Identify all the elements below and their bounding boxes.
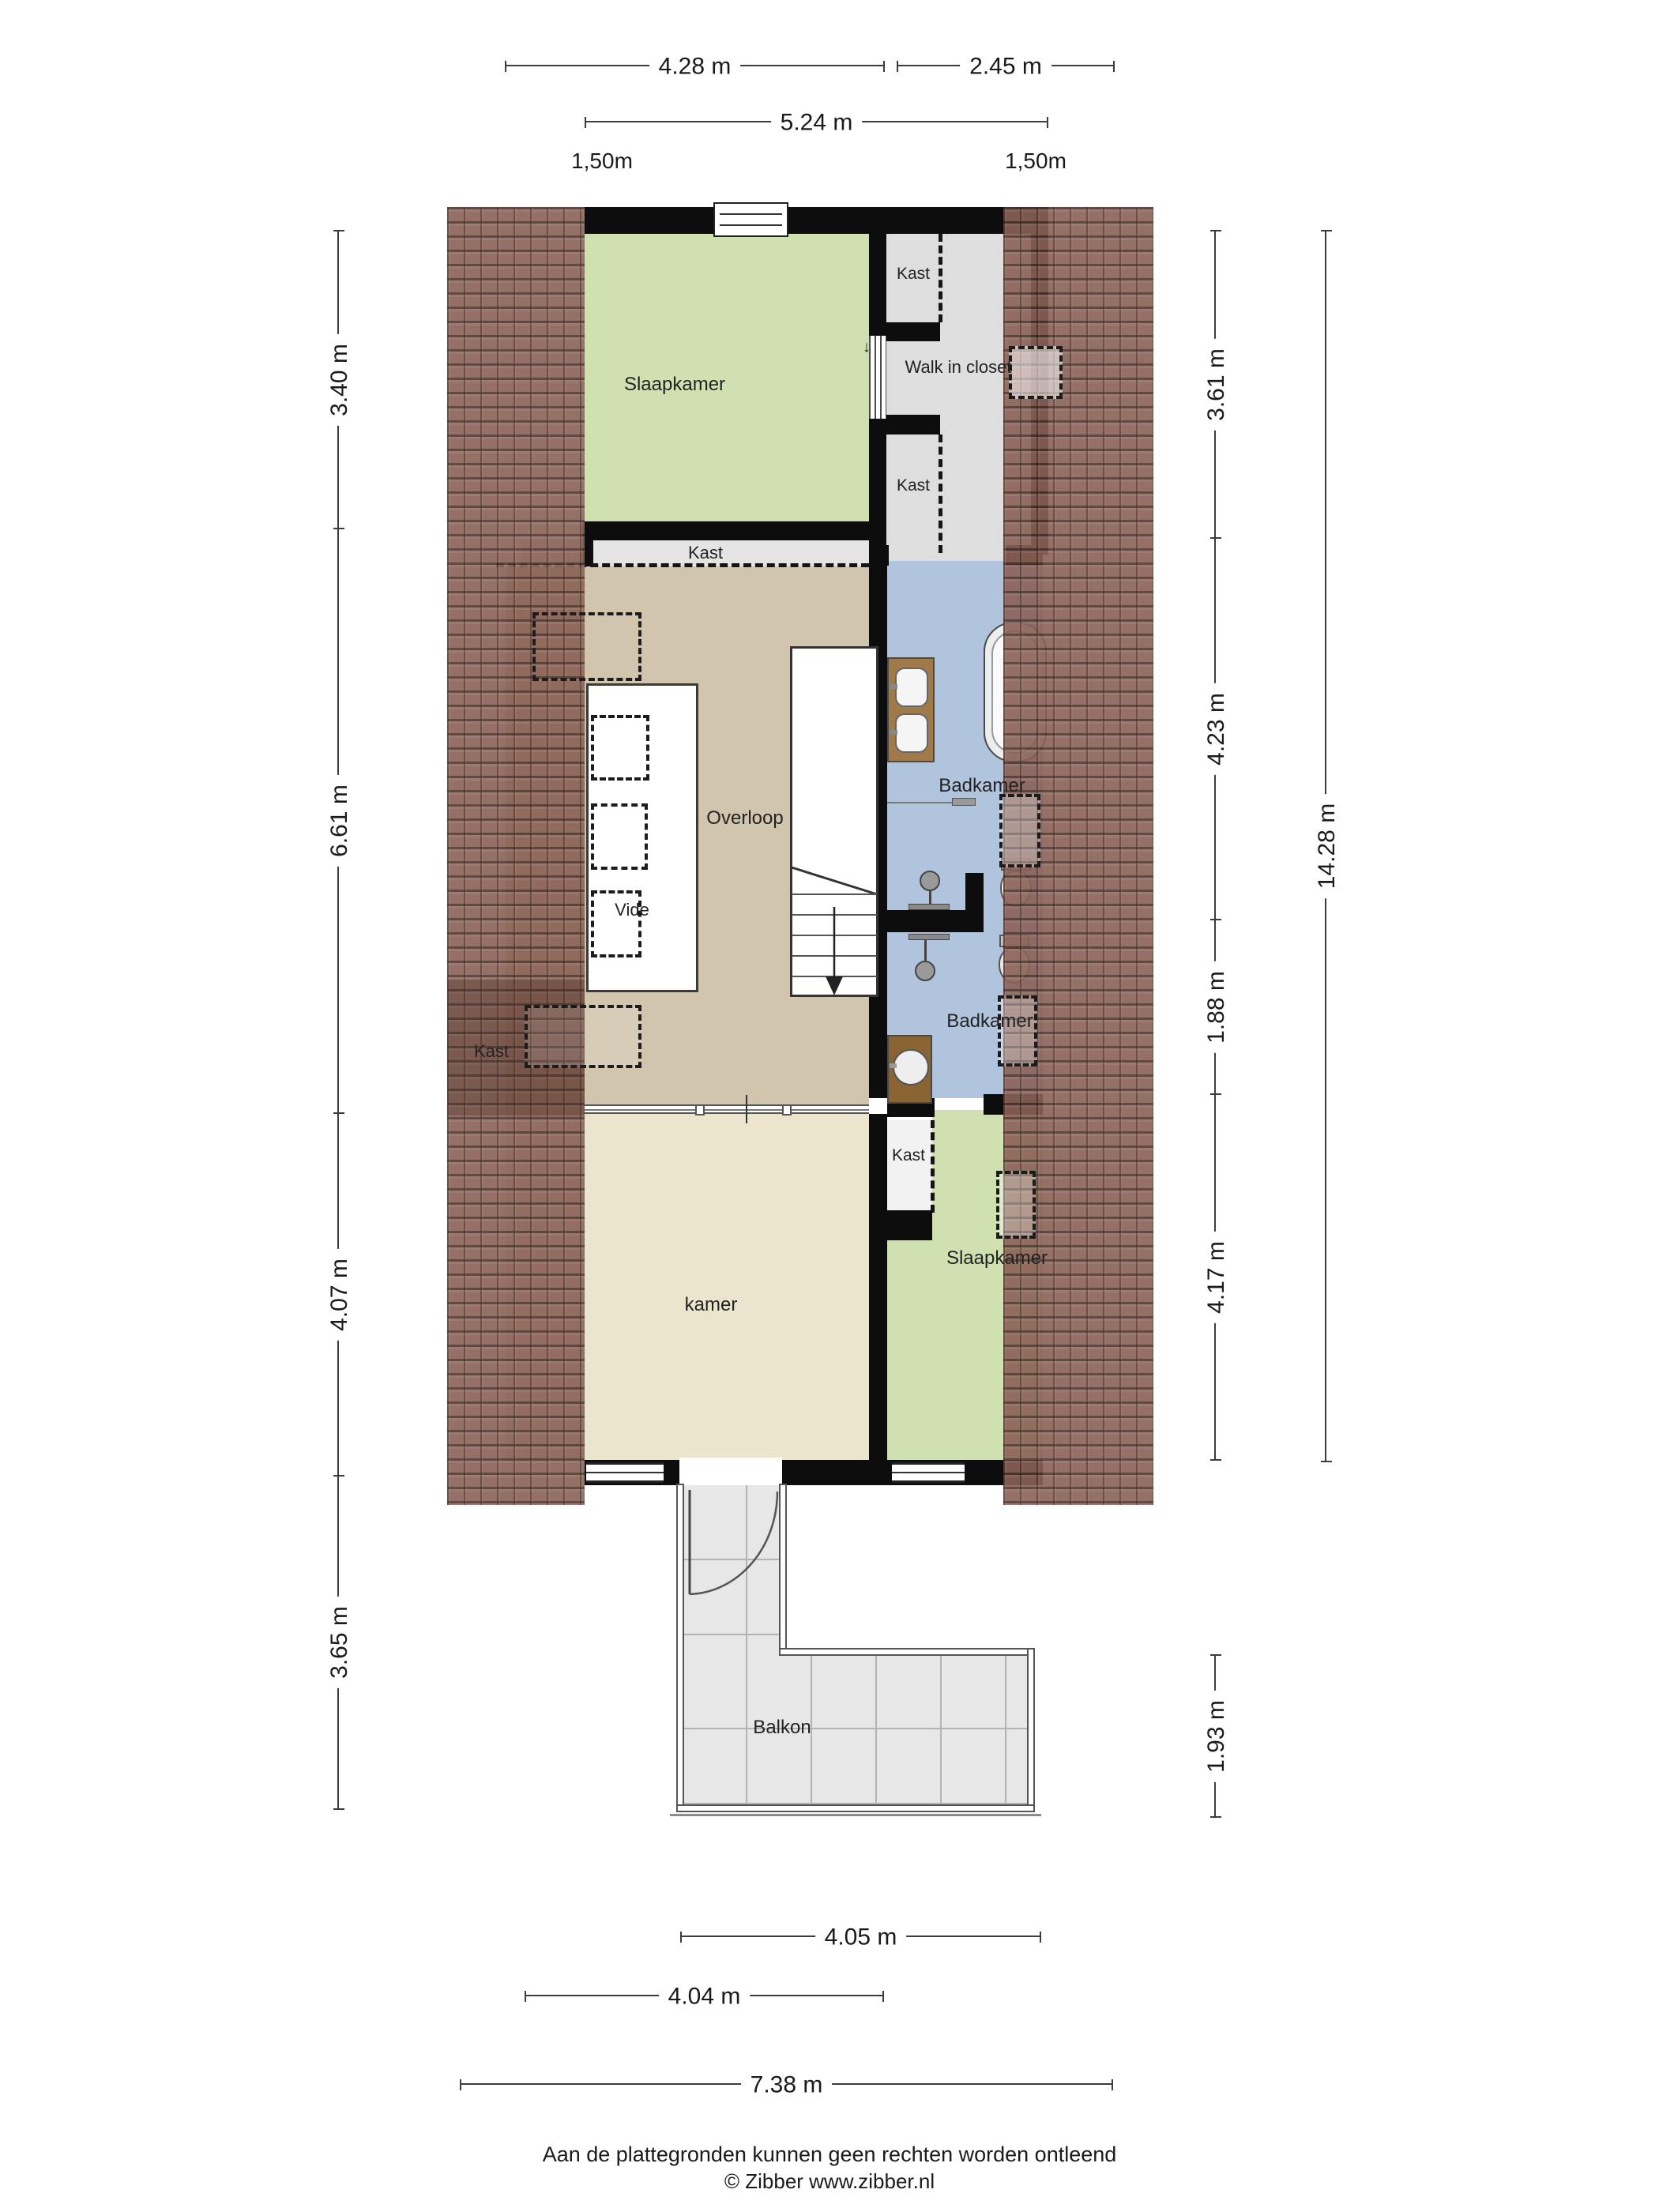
dim-right-1-label: 3.61 m — [1203, 339, 1230, 431]
room-slaapkamer-bottom-ext — [887, 1240, 935, 1465]
balcony-wall-wide-top — [779, 1648, 1035, 1656]
shower-valve-1 — [908, 904, 950, 910]
shower-head-1 — [920, 871, 940, 891]
label-badkamer-2: Badkamer — [946, 1010, 1033, 1033]
label-kast-left-roof: Kast — [474, 1041, 509, 1062]
dim-right-2: 4.23 m — [1214, 538, 1216, 920]
dim-right-4: 4.17 m — [1214, 1094, 1216, 1460]
roof-strip-left — [447, 207, 585, 1505]
dim-top-2-label: 2.45 m — [960, 53, 1051, 80]
kast3-dashed-edge — [931, 1120, 935, 1213]
dim-left-2-label: 6.61 m — [326, 775, 353, 867]
balcony-outer-edge — [670, 1814, 1041, 1816]
label-balkon: Balkon — [753, 1717, 811, 1739]
wall-kast3-bottom — [887, 1210, 932, 1240]
dim-bottom-2: 4.04 m — [525, 1995, 883, 1996]
balcony-door-opening — [679, 1458, 782, 1488]
room-kast3 — [887, 1120, 932, 1213]
dim-top-2: 2.45 m — [897, 65, 1114, 66]
footer-copyright: © Zibber www.zibber.nl — [434, 2169, 1224, 2194]
label-vide: Vide — [615, 900, 649, 920]
partition-door-tick — [746, 1095, 747, 1123]
dim-bottom-1: 4.05 m — [681, 1935, 1040, 1937]
dim-right-2-label: 4.23 m — [1203, 683, 1230, 775]
label-kast3: Kast — [892, 1146, 925, 1165]
dim-right-5: 1.93 m — [1214, 1655, 1216, 1817]
roof-window-kast-left — [525, 1005, 641, 1068]
dim-top-1-label: 4.28 m — [649, 53, 741, 80]
window-slaapkamer-bottom — [892, 1462, 965, 1483]
dim-left-1: 3.40 m — [337, 231, 339, 529]
dim-left-4: 3.65 m — [337, 1476, 339, 1809]
vanity-double-sink — [887, 657, 935, 762]
dim-right-4-label: 4.17 m — [1203, 1232, 1230, 1323]
footer-disclaimer: Aan de plattegronden kunnen geen rechten… — [434, 2142, 1224, 2167]
shower-head-2 — [915, 961, 935, 981]
balcony-wall-bottom — [676, 1804, 1035, 1812]
dim-right-5-label: 1.93 m — [1203, 1691, 1230, 1782]
label-overloop: Overloop — [706, 807, 783, 829]
glass-partition — [585, 1104, 869, 1114]
balcony-wall-right — [1027, 1648, 1035, 1811]
label-slaapkamer-top: Slaapkamer — [624, 374, 725, 396]
dim-bottom-3-label: 7.38 m — [741, 2071, 833, 2098]
kast2-dashed-edge — [939, 434, 942, 553]
roof-window-left-2 — [591, 715, 649, 781]
towel-rail-tray — [952, 798, 976, 806]
dim-right-3: 1.88 m — [1214, 920, 1216, 1094]
dim-left-4-label: 3.65 m — [326, 1597, 353, 1688]
dim-total-height-label: 14.28 m — [1314, 794, 1341, 898]
label-kast2: Kast — [897, 476, 930, 495]
label-badkamer-1: Badkamer — [939, 775, 1025, 797]
vanity-round-sink — [887, 1035, 932, 1104]
dim-bottom-2-label: 4.04 m — [659, 1983, 750, 2010]
label-kast-strip: Kast — [688, 543, 723, 563]
dim-left-3: 4.07 m — [337, 1113, 339, 1476]
balcony-door-swing — [679, 1485, 782, 1604]
dim-top-1: 4.28 m — [506, 65, 884, 66]
label-kast1: Kast — [897, 265, 930, 284]
wall-kast2-top — [886, 415, 940, 434]
window-top — [713, 202, 788, 237]
stairs-icon — [790, 646, 878, 997]
shower-pipe-2 — [924, 940, 927, 961]
wall-kamer-right — [869, 1114, 887, 1461]
dim-bottom-3: 7.38 m — [461, 2083, 1112, 2085]
roof-window-right-1 — [1009, 346, 1063, 399]
sliding-door-slaapkamer — [869, 336, 886, 419]
roof-window-right-4 — [996, 1171, 1036, 1239]
dim-total-height: 14.28 m — [1325, 231, 1326, 1461]
dim-top-3: 5.24 m — [585, 121, 1048, 122]
roof-window-right-2 — [999, 794, 1040, 867]
knee-height-label-left: 1,50m — [547, 149, 657, 174]
kast1-dashed-edge — [939, 234, 942, 322]
wall-top — [585, 207, 1048, 234]
roof-window-left-1 — [532, 612, 641, 681]
dim-left-2: 6.61 m — [337, 529, 339, 1113]
shower-valve-2 — [908, 934, 950, 940]
wall-bath-divider-v — [965, 873, 984, 932]
door-direction-arrow: ↓ — [863, 339, 871, 357]
window-kamer-bottom — [586, 1462, 664, 1483]
wall-kast1-bottom — [886, 322, 940, 341]
dim-right-1: 3.61 m — [1214, 231, 1216, 538]
wall-below-slaapkamer — [582, 521, 873, 540]
floorplan-page: 4.28 m 2.45 m 5.24 m 1,50m 1,50m — [0, 0, 1659, 2212]
roof-window-left-3 — [591, 803, 648, 870]
dim-left-3-label: 4.07 m — [326, 1249, 353, 1341]
wall-slaapkamer-right-1 — [869, 234, 886, 336]
balcony-floor-wide — [683, 1654, 1029, 1809]
dim-top-3-label: 5.24 m — [771, 109, 863, 136]
label-walk-in-closet: Walk in closet — [905, 357, 1012, 378]
dim-left-1-label: 3.40 m — [326, 334, 353, 426]
dim-bottom-1-label: 4.05 m — [815, 1924, 907, 1951]
knee-height-label-right: 1,50m — [980, 149, 1091, 174]
label-kamer: kamer — [685, 1294, 738, 1316]
label-slaapkamer-bottom: Slaapkamer — [946, 1247, 1048, 1270]
dim-right-3-label: 1.88 m — [1203, 961, 1230, 1053]
